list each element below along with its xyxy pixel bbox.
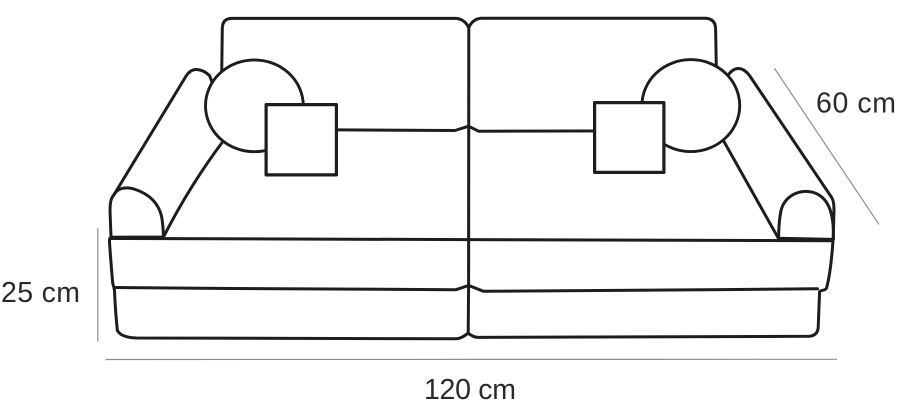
svg-text:120 cm: 120 cm [424, 374, 516, 406]
svg-text:60 cm: 60 cm [816, 88, 896, 120]
svg-text:25 cm: 25 cm [1, 277, 80, 309]
